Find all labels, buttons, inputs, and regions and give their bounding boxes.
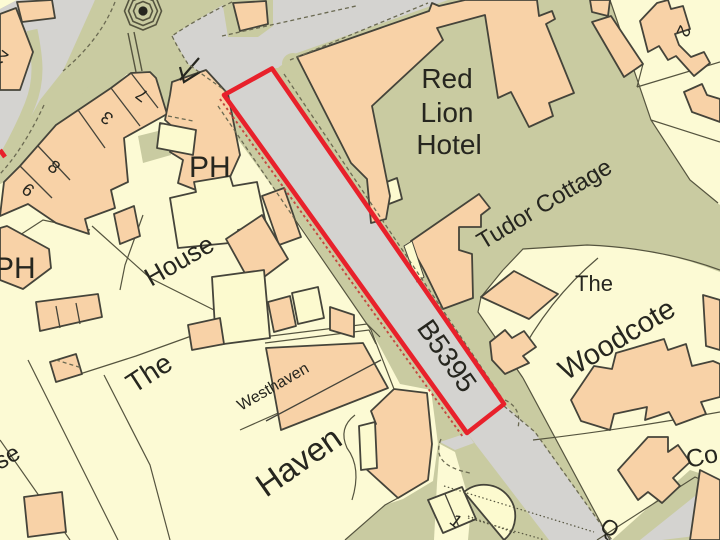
svg-text:The: The bbox=[575, 271, 613, 296]
svg-text:PH: PH bbox=[0, 252, 36, 285]
svg-text:Lion: Lion bbox=[421, 97, 474, 128]
svg-text:Hotel: Hotel bbox=[416, 129, 481, 160]
svg-text:Red: Red bbox=[421, 63, 472, 94]
svg-text:PH: PH bbox=[189, 151, 231, 184]
